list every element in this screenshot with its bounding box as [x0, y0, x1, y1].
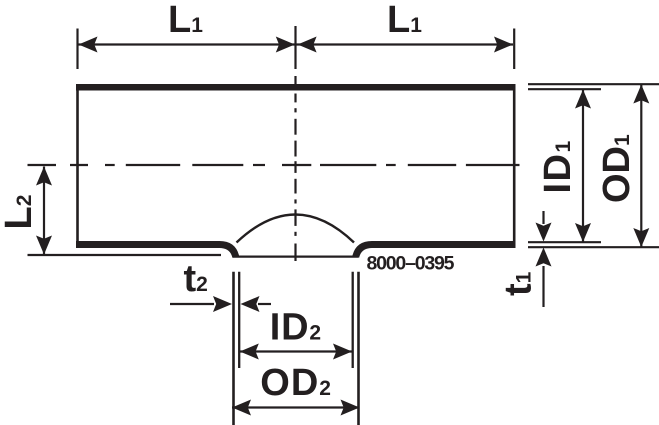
svg-text:8000–0395: 8000–0395: [367, 253, 455, 275]
